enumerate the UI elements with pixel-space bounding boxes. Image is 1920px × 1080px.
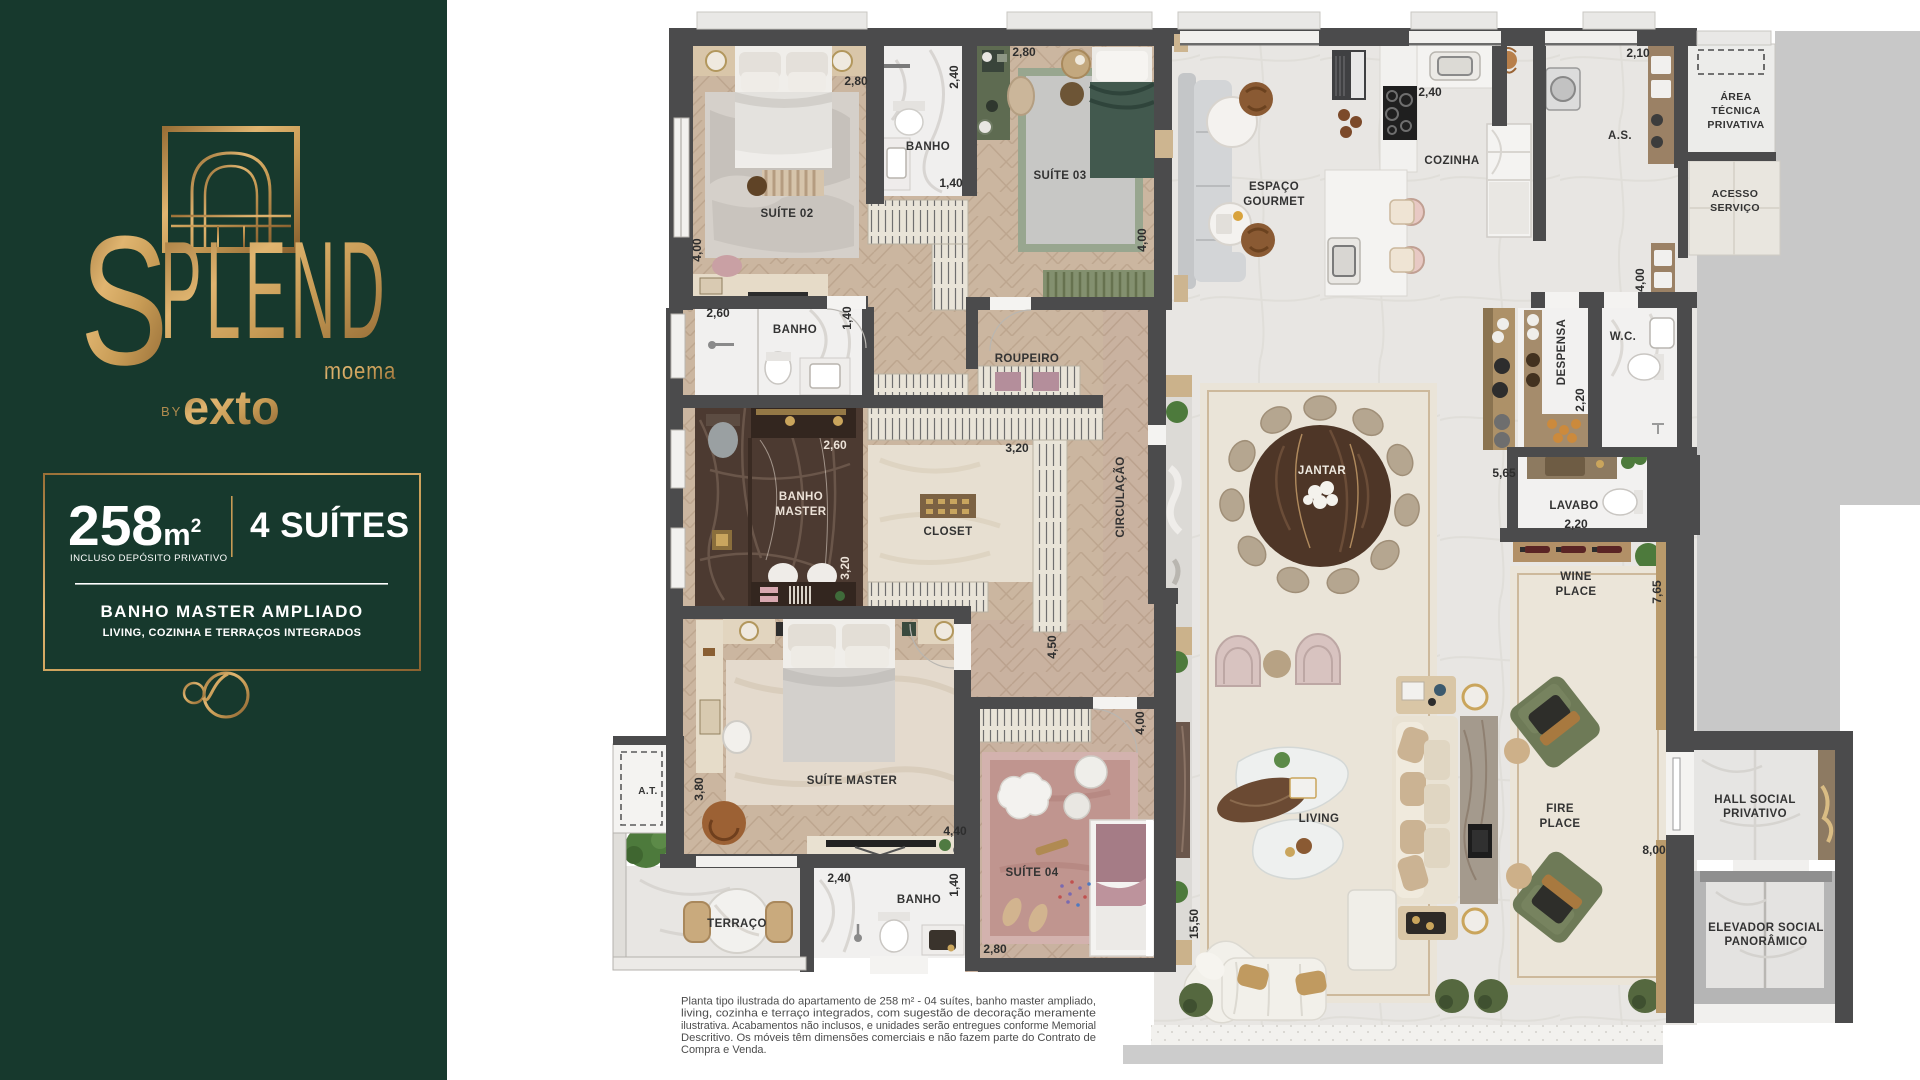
svg-text:3,80: 3,80	[692, 777, 706, 801]
svg-text:Descritivo. Os móveis têm dime: Descritivo. Os móveis têm dimensões come…	[681, 1032, 1096, 1044]
svg-text:BANHO: BANHO	[779, 491, 823, 503]
svg-text:4,50: 4,50	[1045, 635, 1059, 659]
svg-text:15,50: 15,50	[1187, 909, 1201, 939]
svg-text:4,00: 4,00	[690, 238, 704, 262]
svg-text:SUÍTE 02: SUÍTE 02	[760, 207, 813, 220]
svg-text:A.T.: A.T.	[638, 786, 657, 797]
svg-text:3,20: 3,20	[1005, 441, 1029, 455]
svg-text:PLACE: PLACE	[1540, 818, 1581, 830]
svg-text:exto: exto	[183, 382, 280, 436]
svg-text:FIRE: FIRE	[1546, 803, 1574, 815]
svg-text:BANHO: BANHO	[906, 141, 950, 153]
svg-text:TÉCNICA: TÉCNICA	[1711, 104, 1760, 117]
svg-text:BY: BY	[161, 404, 182, 419]
svg-text:1,40: 1,40	[947, 873, 961, 897]
svg-text:SUÍTE 04: SUÍTE 04	[1005, 866, 1058, 879]
svg-text:8,00: 8,00	[1642, 843, 1666, 857]
svg-text:LIVING: LIVING	[1299, 813, 1340, 825]
svg-text:BANHO MASTER AMPLIADO: BANHO MASTER AMPLIADO	[101, 602, 364, 621]
svg-text:2,80: 2,80	[1012, 45, 1036, 59]
svg-text:DESPENSA: DESPENSA	[1556, 319, 1568, 385]
svg-text:ÁREA: ÁREA	[1720, 90, 1751, 103]
svg-text:TERRAÇO: TERRAÇO	[707, 918, 767, 930]
svg-text:2,80: 2,80	[983, 942, 1007, 956]
svg-text:4,00: 4,00	[1133, 711, 1147, 735]
svg-text:PRIVATIVA: PRIVATIVA	[1707, 119, 1764, 131]
svg-text:S: S	[80, 198, 168, 403]
svg-text:GOURMET: GOURMET	[1243, 196, 1305, 208]
svg-text:4,00: 4,00	[1633, 268, 1647, 292]
svg-text:PRIVATIVO: PRIVATIVO	[1723, 808, 1787, 820]
svg-text:ROUPEIRO: ROUPEIRO	[995, 353, 1060, 365]
svg-text:PLEND: PLEND	[160, 212, 389, 368]
svg-text:PLACE: PLACE	[1556, 586, 1597, 598]
svg-text:Compra e Venda.: Compra e Venda.	[681, 1044, 767, 1056]
svg-text:ilustrativa. Acabamentos não i: ilustrativa. Acabamentos não inclusos, e…	[681, 1020, 1096, 1032]
svg-text:2,20: 2,20	[1573, 388, 1587, 412]
svg-text:2,60: 2,60	[706, 306, 730, 320]
svg-text:SUÍTE MASTER: SUÍTE MASTER	[807, 774, 898, 787]
svg-text:COZINHA: COZINHA	[1424, 155, 1479, 167]
svg-text:CLOSET: CLOSET	[923, 526, 972, 538]
svg-text:2,40: 2,40	[1418, 85, 1442, 99]
svg-text:LIVING, COZINHA E TERRAÇOS INT: LIVING, COZINHA E TERRAÇOS INTEGRADOS	[103, 627, 362, 639]
svg-text:SERVIÇO: SERVIÇO	[1710, 202, 1760, 214]
svg-text:WINE: WINE	[1560, 571, 1592, 583]
svg-text:3,20: 3,20	[838, 556, 852, 580]
svg-text:A.S.: A.S.	[1608, 130, 1632, 142]
svg-text:4,40: 4,40	[943, 824, 967, 838]
svg-text:4 SUÍTES: 4 SUÍTES	[250, 505, 410, 545]
svg-text:ELEVADOR SOCIAL: ELEVADOR SOCIAL	[1708, 922, 1824, 934]
svg-text:7,65: 7,65	[1650, 580, 1664, 604]
svg-text:W.C.: W.C.	[1610, 331, 1637, 343]
svg-text:2,60: 2,60	[823, 438, 847, 452]
svg-text:INCLUSO DEPÓSITO PRIVATIVO: INCLUSO DEPÓSITO PRIVATIVO	[70, 553, 228, 564]
svg-text:LAVABO: LAVABO	[1549, 500, 1598, 512]
svg-text:2,20: 2,20	[1564, 517, 1588, 531]
svg-text:CIRCULAÇÃO: CIRCULAÇÃO	[1114, 456, 1127, 537]
svg-text:2,10: 2,10	[1626, 46, 1650, 60]
svg-text:5,65: 5,65	[1492, 466, 1516, 480]
svg-text:1,40: 1,40	[939, 176, 963, 190]
svg-text:2,40: 2,40	[947, 65, 961, 89]
svg-text:ESPAÇO: ESPAÇO	[1249, 181, 1299, 193]
svg-text:ACESSO: ACESSO	[1712, 188, 1759, 200]
svg-text:2,40: 2,40	[827, 871, 851, 885]
svg-text:living, cozinha e terraço inte: living, cozinha e terraço integrados, co…	[681, 1008, 1096, 1020]
svg-text:4,00: 4,00	[1135, 228, 1149, 252]
svg-text:Planta tipo ilustrada do apart: Planta tipo ilustrada do apartamento de …	[681, 996, 1096, 1008]
svg-text:1,40: 1,40	[840, 306, 854, 330]
svg-text:PANORÂMICO: PANORÂMICO	[1724, 935, 1807, 948]
svg-text:2,80: 2,80	[844, 74, 868, 88]
svg-text:moema: moema	[324, 357, 396, 384]
svg-text:SUÍTE 03: SUÍTE 03	[1033, 169, 1086, 182]
svg-text:MASTER: MASTER	[776, 506, 827, 518]
svg-text:BANHO: BANHO	[897, 894, 941, 906]
svg-text:HALL SOCIAL: HALL SOCIAL	[1714, 794, 1796, 806]
svg-text:BANHO: BANHO	[773, 324, 817, 336]
svg-text:JANTAR: JANTAR	[1298, 465, 1346, 477]
